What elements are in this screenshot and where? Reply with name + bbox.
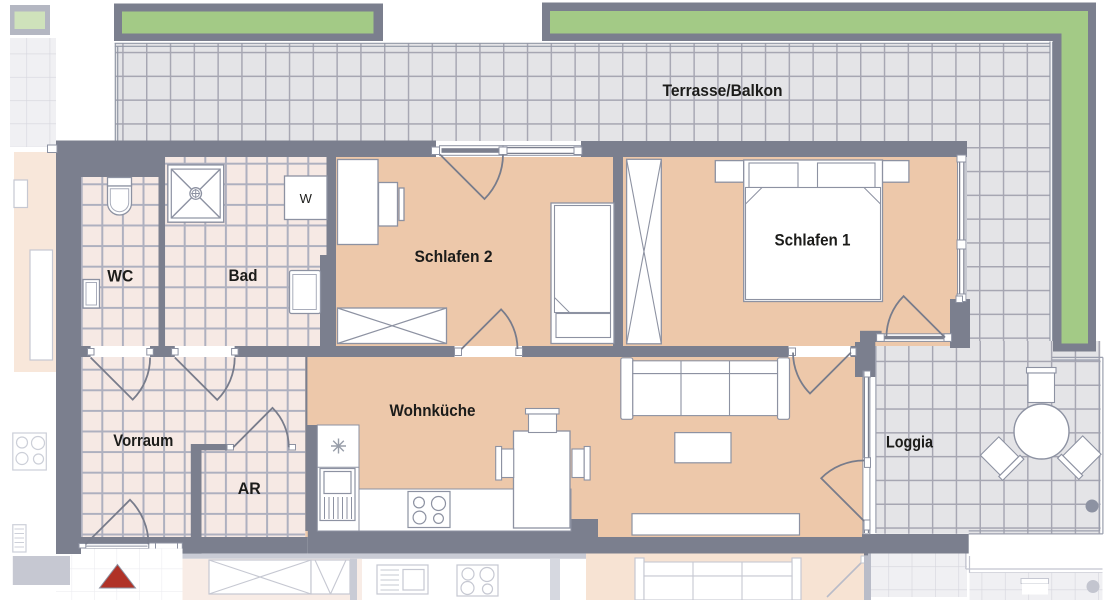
svg-text:Wohnküche: Wohnküche <box>390 401 476 420</box>
svg-text:Vorraum: Vorraum <box>113 431 173 450</box>
svg-text:Terrasse/Balkon: Terrasse/Balkon <box>663 81 783 100</box>
svg-text:Loggia: Loggia <box>886 433 933 452</box>
svg-text:Schlafen 1: Schlafen 1 <box>775 231 851 250</box>
svg-text:Bad: Bad <box>229 266 258 285</box>
svg-text:WC: WC <box>107 267 133 286</box>
svg-text:AR: AR <box>238 479 261 498</box>
svg-text:W: W <box>300 191 313 206</box>
svg-text:Schlafen 2: Schlafen 2 <box>415 247 493 266</box>
